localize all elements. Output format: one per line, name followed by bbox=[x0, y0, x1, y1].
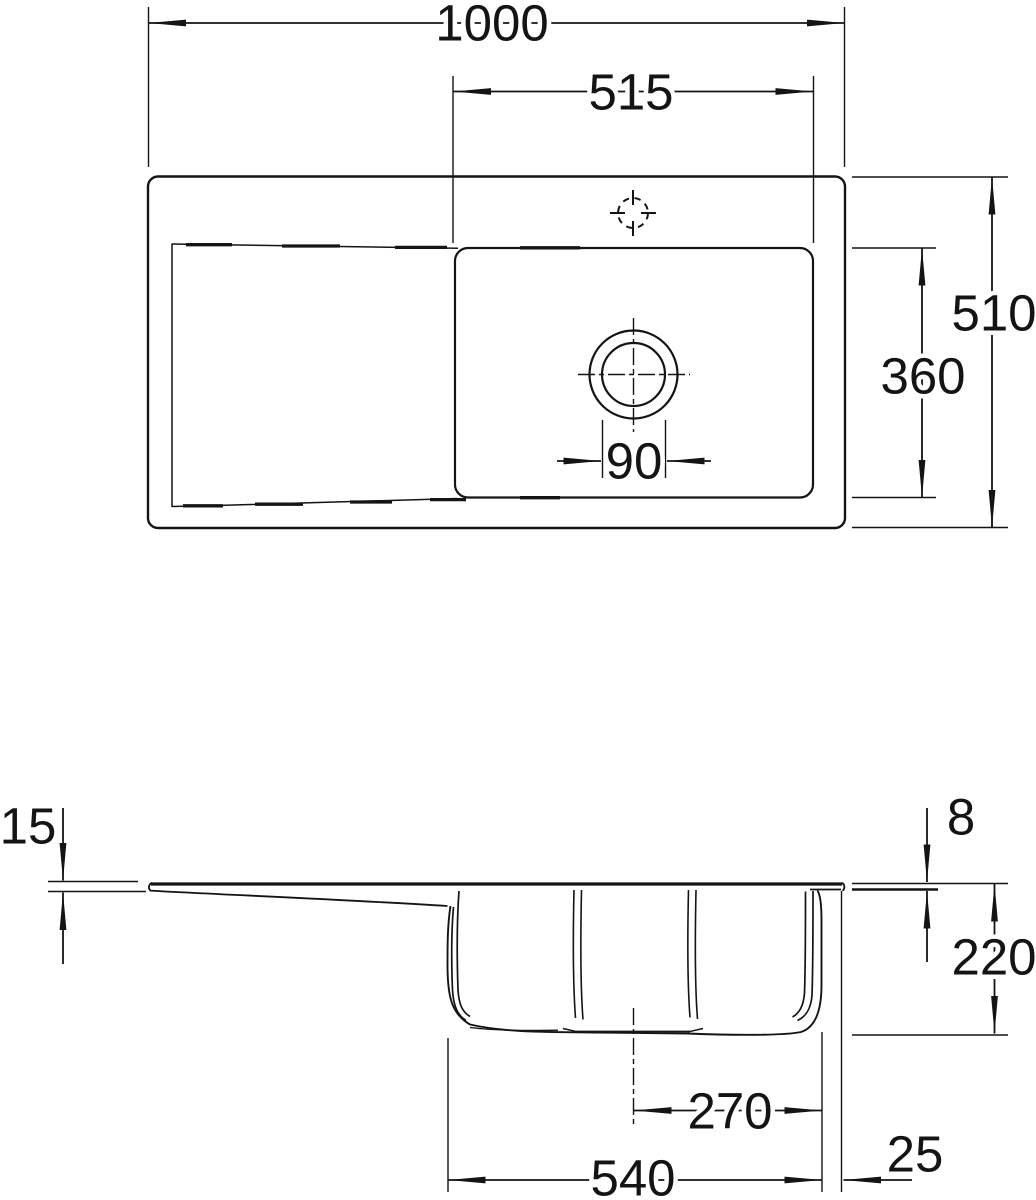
bowl-left-wall-outer bbox=[452, 907, 466, 1021]
dimension-bowl-width: 515 bbox=[453, 64, 814, 244]
dim-label-360: 360 bbox=[880, 348, 965, 405]
dim-label-8: 8 bbox=[947, 789, 975, 846]
plan-view: 1000 515 510 360 90 bbox=[148, 0, 1036, 528]
dimension-drain-offset: 270 bbox=[634, 1083, 822, 1140]
bowl-back-corner-line bbox=[573, 890, 575, 1018]
dim-label-270: 270 bbox=[687, 1083, 772, 1140]
dimension-bowl-outer-width: 540 bbox=[448, 1150, 822, 1200]
dimension-bowl-height: 220 bbox=[852, 884, 1036, 1035]
dim-label-510: 510 bbox=[951, 285, 1036, 342]
dim-label-25: 25 bbox=[887, 1126, 944, 1183]
bowl-outer-silhouette bbox=[448, 891, 822, 1035]
dim-label-220: 220 bbox=[951, 929, 1036, 986]
dimension-edge-offset: 25 bbox=[844, 1126, 944, 1183]
bowl-right-wall-inner bbox=[793, 892, 806, 1018]
section-view: 15 8 220 270 540 bbox=[0, 789, 1036, 1200]
rim-right-tip bbox=[842, 883, 844, 891]
dim-label-15: 15 bbox=[0, 798, 56, 855]
dim-label-515: 515 bbox=[588, 64, 673, 121]
technical-drawing-canvas: 1000 515 510 360 90 bbox=[0, 0, 1036, 1200]
drainboard-outline bbox=[172, 244, 580, 508]
dimension-rim-height-left: 15 bbox=[0, 798, 146, 965]
sink-technical-drawing: 1000 515 510 360 90 bbox=[0, 0, 1036, 1200]
dim-label-540: 540 bbox=[590, 1150, 675, 1200]
dimension-bowl-depth: 360 bbox=[852, 248, 966, 498]
dimension-overall-width: 1000 bbox=[149, 0, 845, 167]
rim-left-tip-and-underside bbox=[149, 883, 448, 906]
drain-symbol bbox=[578, 318, 690, 432]
dim-label-90: 90 bbox=[606, 433, 663, 490]
sink-outer-outline bbox=[148, 177, 845, 529]
bowl-left-wall-inner bbox=[457, 891, 470, 1017]
dim-label-1000: 1000 bbox=[435, 0, 548, 52]
faucet-hole-icon bbox=[610, 190, 656, 236]
